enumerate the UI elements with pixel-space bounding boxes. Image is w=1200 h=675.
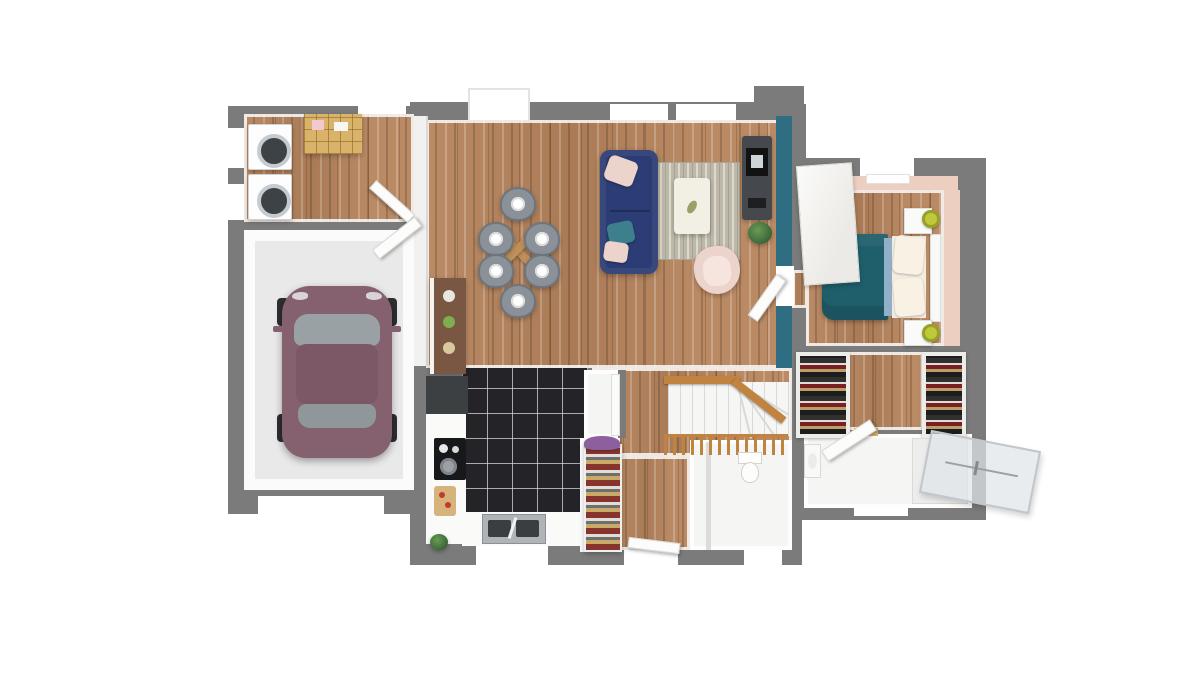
washer-door-icon: [257, 134, 291, 168]
car-headlight: [366, 292, 382, 300]
shoe-rack: [584, 444, 622, 552]
teal-accent-wall-upper: [776, 116, 792, 266]
dining-chair: [500, 284, 536, 318]
window-wc-bottom: [744, 548, 782, 568]
cutting-board: [434, 486, 456, 516]
entry-floor: [616, 456, 690, 550]
basin-bowl: [808, 453, 817, 469]
plate: [535, 232, 549, 246]
dining-chair: [524, 222, 560, 256]
corridor-wc-partition: [706, 442, 711, 550]
kitchen-tall-cabinet: [430, 278, 466, 374]
shelf-item: [312, 120, 324, 130]
window-laundry-left-2: [226, 184, 244, 220]
dressing-wardrobe-left: [796, 352, 850, 438]
car-headlight: [292, 292, 308, 300]
bay-window-living-top: [468, 88, 530, 122]
kitchen-sink: [482, 514, 546, 544]
stairs-handrail-top: [664, 376, 740, 384]
car-mirror: [390, 326, 401, 332]
bed-sheet-accent: [884, 238, 892, 316]
washing-machine-2: [248, 174, 292, 220]
plate: [511, 197, 525, 211]
kitchen-tile-floor: [462, 368, 588, 514]
cabinet-item-round: [443, 342, 455, 354]
bed-pillow: [892, 235, 926, 276]
plate: [535, 264, 549, 278]
washer-door-icon: [257, 184, 291, 218]
sofa-cushion-pink-2: [603, 240, 630, 263]
window-laundry-left-1: [226, 128, 244, 168]
bed-headboard: [930, 234, 941, 322]
tomato: [439, 492, 445, 498]
toilet: [738, 452, 760, 482]
shelf-item: [334, 122, 348, 131]
lamp-yellow: [922, 324, 940, 342]
shoe-rack-top-item: [584, 436, 620, 450]
sink-basin: [516, 520, 539, 537]
burner: [439, 444, 448, 453]
plate: [511, 294, 525, 308]
wall-pier-bedroom-left: [794, 104, 806, 164]
plate: [489, 232, 503, 246]
pot: [440, 458, 457, 475]
table-decor: [685, 199, 699, 215]
coffee-table: [674, 178, 710, 234]
shower-handle: [945, 461, 1018, 477]
laundry-shelf-unit: [304, 114, 362, 154]
dining-chair: [478, 254, 514, 288]
washing-machine-1: [248, 124, 292, 170]
lamp-yellow: [922, 210, 940, 228]
dressing-corridor-floor: [844, 352, 924, 430]
bedroom-wall-right: [942, 190, 960, 346]
dining-chair: [478, 222, 514, 256]
soundbar: [748, 198, 766, 208]
cooktop: [434, 438, 466, 480]
dressing-wardrobe-right: [922, 352, 966, 438]
cabinet-item-round: [443, 316, 455, 328]
window-kitchen-bottom: [476, 546, 548, 572]
plate: [489, 264, 503, 278]
bedroom-window-radiator: [866, 174, 910, 184]
floorplan-render: [0, 0, 1200, 675]
armchair-seat: [702, 255, 733, 288]
niche-door: [611, 374, 620, 436]
washbasin: [804, 444, 821, 478]
car: [282, 286, 392, 458]
tv-screen: [746, 148, 768, 176]
plant-kitchen: [430, 534, 448, 550]
dining-chair: [500, 187, 536, 221]
bedroom-wardrobe: [796, 162, 860, 286]
kitchen-corner-cabinet: [426, 376, 468, 414]
sofa-seat-line: [610, 210, 650, 212]
window-bedroom-top: [860, 156, 914, 176]
dining-chair: [524, 254, 560, 288]
plant-living: [748, 222, 772, 244]
toilet-bowl: [741, 462, 759, 483]
interior-wall-left: [414, 116, 428, 366]
bed-pillow: [892, 277, 925, 317]
car-windshield: [294, 314, 380, 346]
burner: [452, 446, 459, 453]
teal-accent-wall-lower: [776, 306, 792, 368]
cabinet-item-round: [443, 290, 455, 302]
garage-door-opening: [258, 496, 384, 516]
tv-cabinet: [742, 136, 772, 220]
tomato: [445, 502, 451, 508]
stairs-balustrade: [664, 434, 788, 455]
tv-picture: [751, 155, 763, 168]
car-rear-window: [298, 404, 376, 428]
car-mirror: [273, 326, 284, 332]
car-roof: [296, 344, 378, 404]
